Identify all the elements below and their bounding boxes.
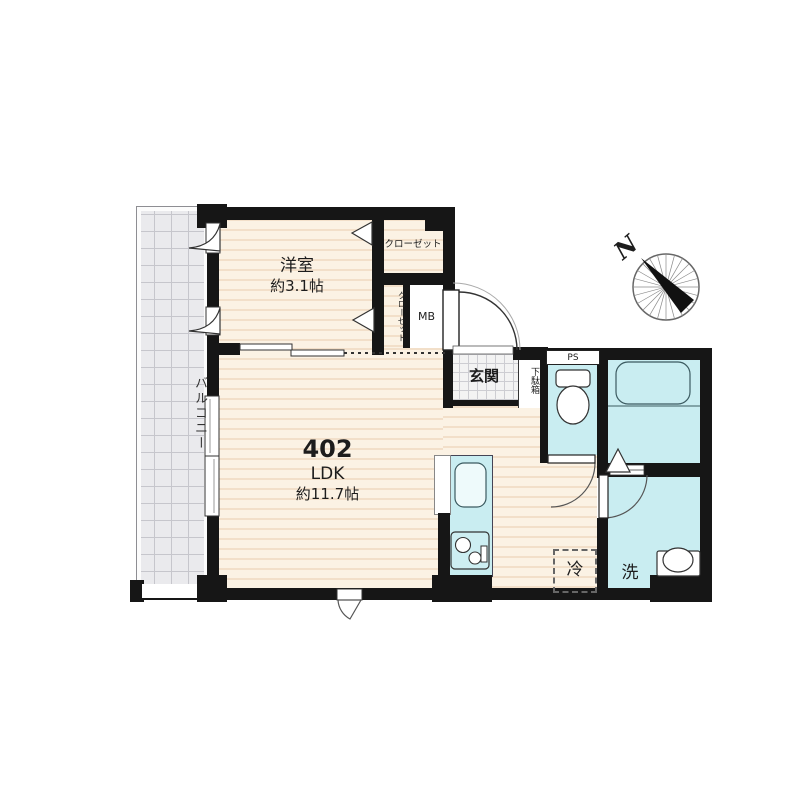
bedroom-size: 約3.1帖 [228,277,366,296]
ldk-label: 402 LDK 約11.7帖 [250,434,405,504]
compass-icon [633,254,699,320]
entrance-door-icon [443,283,520,354]
pipe-space-label: PS [567,353,578,363]
bedroom-window-icon [189,223,220,335]
balcony-label: バルコニー [136,358,207,468]
pipe-space-box: PS [546,350,600,365]
bathroom-door-icon [606,449,644,475]
kitchen-sink-icon [455,463,486,507]
bathtub-icon [608,362,700,406]
washroom-door-icon [599,475,647,518]
toilet-icon [556,370,590,424]
closet-top-label: クローゼット [381,239,445,251]
entrance-label: 玄関 [450,353,518,400]
unit-number: 402 [250,434,405,464]
closet-side-label: クローゼット [379,291,405,347]
balcony-opening [142,584,197,598]
floor-plan: PS [0,0,800,800]
meter-box-label: MB [410,285,443,348]
stove-icon [451,532,489,569]
bedroom-name: 洋室 [228,256,366,277]
washing-machine-icon [657,548,700,576]
plan-symbols [0,0,800,800]
bedroom-label: 洋室 約3.1帖 [228,256,366,296]
washer-space-label: 洗 [612,562,648,586]
ldk-size: 約11.7帖 [250,485,405,504]
bottom-window-icon [337,589,362,619]
refrigerator-space-box: 冷 [553,549,597,593]
ldk-window-icon [205,396,219,516]
ldk-type: LDK [250,464,405,485]
toilet-door-icon [548,455,595,507]
shoe-cabinet-label: 下駄箱 [519,356,539,404]
